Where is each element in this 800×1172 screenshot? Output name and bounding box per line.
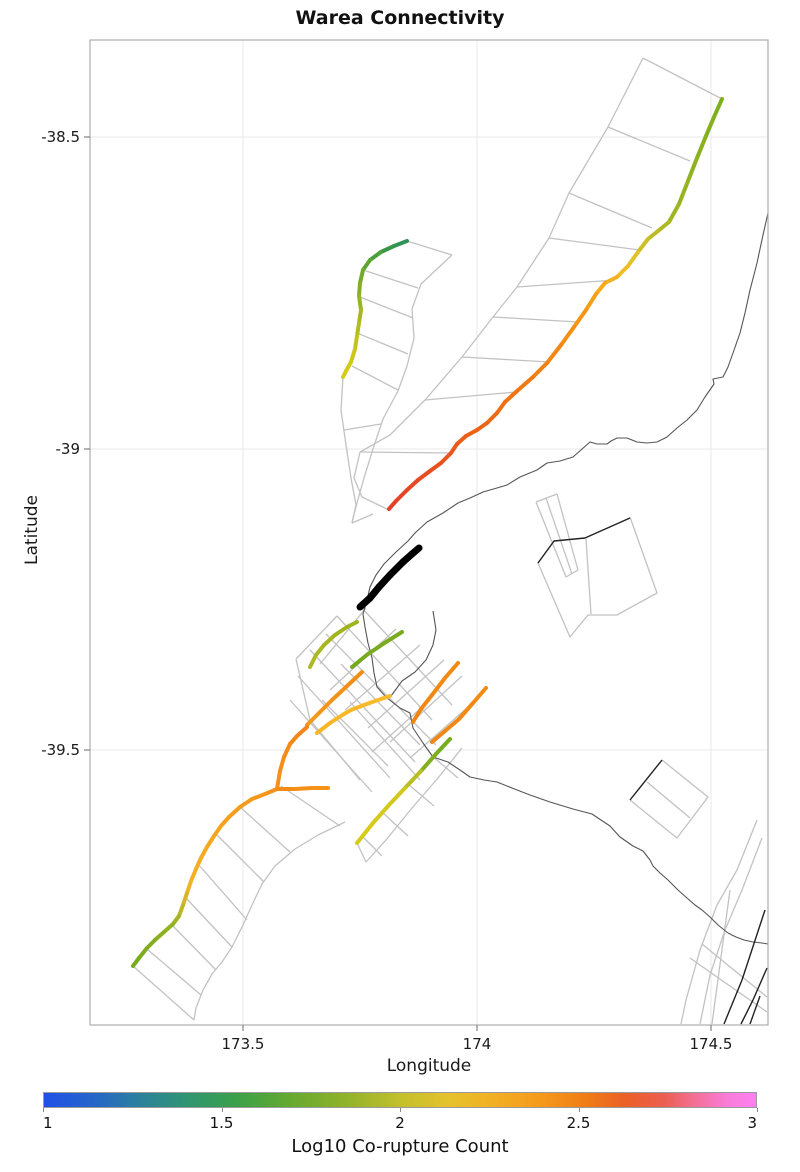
fault-southwest-fault xyxy=(229,807,240,817)
fault-cluster-orange-a xyxy=(421,695,432,709)
colorbar-tick-label: 1.5 xyxy=(210,1114,234,1132)
fault-section-outline xyxy=(216,834,264,882)
fault-cluster-yellow-long xyxy=(389,788,405,805)
fault-southwest-fault xyxy=(252,794,265,799)
x-tick-label: 173.5 xyxy=(222,1035,265,1053)
fault-section-outline xyxy=(643,58,722,99)
fault-northeast-fault xyxy=(418,471,430,480)
fault-cluster-amber xyxy=(364,700,378,705)
fault-section-outline xyxy=(362,836,382,856)
fault-cluster-orange-b xyxy=(473,688,486,703)
fault-section-outline xyxy=(352,514,373,523)
fault-cluster-chartreuse xyxy=(310,655,316,667)
fault-cluster-yellow-long xyxy=(421,754,436,771)
fault-northeast-fault xyxy=(605,277,617,283)
fault-northeast-fault xyxy=(389,501,396,509)
colorbar-tick-label: 3 xyxy=(747,1114,757,1132)
fault-section-outline xyxy=(608,127,690,161)
fault-cluster-green xyxy=(352,654,368,667)
y-tick-label: -38.5 xyxy=(41,128,80,146)
fault-section-outline xyxy=(586,539,591,614)
colorbar-tick xyxy=(222,1108,223,1112)
fault-northeast-fault xyxy=(617,266,628,277)
fault-southwest-fault xyxy=(240,799,252,807)
fault-section-outline xyxy=(240,807,290,852)
colorbar-tick xyxy=(400,1108,401,1112)
fault-northeast-fault xyxy=(706,117,714,136)
colorbar-label: Log10 Co-rupture Count xyxy=(0,1136,800,1157)
colorbar-tick-label: 1 xyxy=(43,1114,53,1132)
map-canvas: 173.5174174.5-38.5-39-39.5 xyxy=(0,0,800,1172)
fault-cluster-yellow-long xyxy=(405,771,421,788)
colorbar-tick-label: 2.5 xyxy=(567,1114,591,1132)
fault-cluster-yellow-long xyxy=(373,805,389,823)
x-axis-label: Longitude xyxy=(90,1056,768,1076)
fault-northwest-fault xyxy=(360,270,363,283)
fault-section-outline xyxy=(432,756,458,778)
x-tick-label: 174.5 xyxy=(690,1035,733,1053)
coastline xyxy=(363,213,768,944)
fault-section-outline xyxy=(360,297,413,318)
colorbar-tick xyxy=(579,1108,580,1112)
fault-northeast-fault xyxy=(697,136,706,158)
fault-northeast-fault xyxy=(407,480,418,490)
fault-northeast-fault xyxy=(638,239,648,252)
fault-section-outline xyxy=(366,748,462,862)
fault-northeast-fault xyxy=(669,204,679,222)
fault-northeast-fault xyxy=(561,327,574,345)
fault-northeast-fault xyxy=(517,377,533,391)
figure: Warea Connectivity 173.5174174.5-38.5-39… xyxy=(0,0,800,1172)
fault-section-outline xyxy=(549,238,640,250)
fault-southwest-fault xyxy=(133,958,139,966)
fault-cluster-orange-left xyxy=(332,687,346,700)
fault-section-outline xyxy=(566,570,578,577)
fault-cluster-amber xyxy=(317,723,330,733)
colorbar-tick xyxy=(43,1108,44,1112)
y-tick-label: -39.5 xyxy=(41,741,80,759)
fault-cluster-chartreuse xyxy=(324,635,335,645)
fault-cluster-yellow-long xyxy=(436,739,450,754)
fault-northeast-fault xyxy=(714,99,722,117)
y-tick-label: -39 xyxy=(56,440,81,458)
fault-northwest-fault xyxy=(370,252,381,260)
fault-section-outline xyxy=(557,494,578,570)
fault-northwest-fault xyxy=(343,371,346,377)
fault-section-outline xyxy=(425,392,516,400)
fault-northeast-fault xyxy=(658,222,669,231)
x-tick-label: 174 xyxy=(463,1035,492,1053)
fault-section-outline xyxy=(198,864,247,920)
fault-section-outline xyxy=(344,424,381,430)
fault-northwest-fault xyxy=(359,296,361,310)
fault-section-outline xyxy=(352,255,452,522)
fault-northeast-fault xyxy=(628,252,638,266)
fault-cluster-chartreuse xyxy=(347,622,357,627)
colorbar-tick-label: 2 xyxy=(395,1114,405,1132)
fault-section-outline xyxy=(357,333,408,354)
fault-section-outline xyxy=(281,786,340,826)
fault-section-outline xyxy=(296,659,310,720)
fault-northeast-fault xyxy=(574,310,586,327)
fault-section-outline xyxy=(341,377,356,523)
fault-cluster-yellow-long xyxy=(357,823,373,843)
fault-cluster-orange-a xyxy=(445,663,458,678)
fault-southwest-fault xyxy=(280,757,284,771)
fault-cluster-green xyxy=(368,642,386,654)
fault-section-outline xyxy=(147,949,201,995)
fault-northeast-fault xyxy=(396,490,407,501)
fault-section-outline xyxy=(354,452,389,510)
fault-northwest-fault xyxy=(394,241,407,246)
fault-section-outline xyxy=(569,193,652,228)
fault-section-outline xyxy=(194,822,345,1020)
fault-section-outline xyxy=(681,820,757,1024)
fault-northeast-fault xyxy=(497,402,505,413)
fault-section-outline xyxy=(462,357,549,362)
fault-section-outline xyxy=(382,812,408,836)
fault-northeast-fault xyxy=(441,453,451,463)
fault-section-outline xyxy=(352,366,398,390)
fault-section-outline xyxy=(361,607,452,705)
fault-southwest-fault xyxy=(284,744,290,757)
fault-northwest-fault xyxy=(381,246,394,252)
fault-southwest-branch xyxy=(295,788,312,789)
fault-section-outline xyxy=(538,517,657,637)
colorbar xyxy=(43,1092,757,1108)
fault-section-outline xyxy=(647,782,690,818)
fault-section-outline xyxy=(320,608,366,664)
fault-section-outline xyxy=(133,966,194,1020)
fault-northeast-fault xyxy=(533,363,547,377)
coastline xyxy=(387,611,436,698)
fault-northeast-fault xyxy=(487,413,497,423)
fault-section-outline xyxy=(186,898,232,947)
fault-southwest-fault xyxy=(297,727,307,736)
fault-northeast-fault xyxy=(547,345,561,363)
fault-cluster-orange-b xyxy=(459,703,473,719)
fault-black-highlighted-segment xyxy=(412,548,419,554)
fault-southwest-fault xyxy=(277,771,280,789)
fault-section-outline xyxy=(407,241,452,255)
fault-section-outline xyxy=(357,843,366,862)
colorbar-tick xyxy=(757,1108,758,1112)
fault-northeast-fault xyxy=(688,158,697,181)
fault-northeast-fault xyxy=(430,463,441,471)
y-axis-label: Latitude xyxy=(22,470,42,590)
fault-section-outline xyxy=(630,760,708,838)
fault-section-outline xyxy=(360,452,451,453)
fault-section-outline xyxy=(363,270,418,288)
fault-section-outline xyxy=(700,838,762,1024)
fault-section-outline xyxy=(493,317,578,322)
fault-northeast-fault xyxy=(596,283,605,294)
dark-fault-trace xyxy=(750,996,760,1024)
fault-northwest-fault xyxy=(351,349,355,362)
fault-northeast-fault xyxy=(586,294,596,310)
fault-northeast-fault xyxy=(679,181,688,204)
fault-section-outline xyxy=(172,925,216,970)
fault-section-outline xyxy=(350,702,420,780)
fault-cluster-orange-left xyxy=(346,672,362,687)
dark-fault-trace xyxy=(630,760,662,800)
